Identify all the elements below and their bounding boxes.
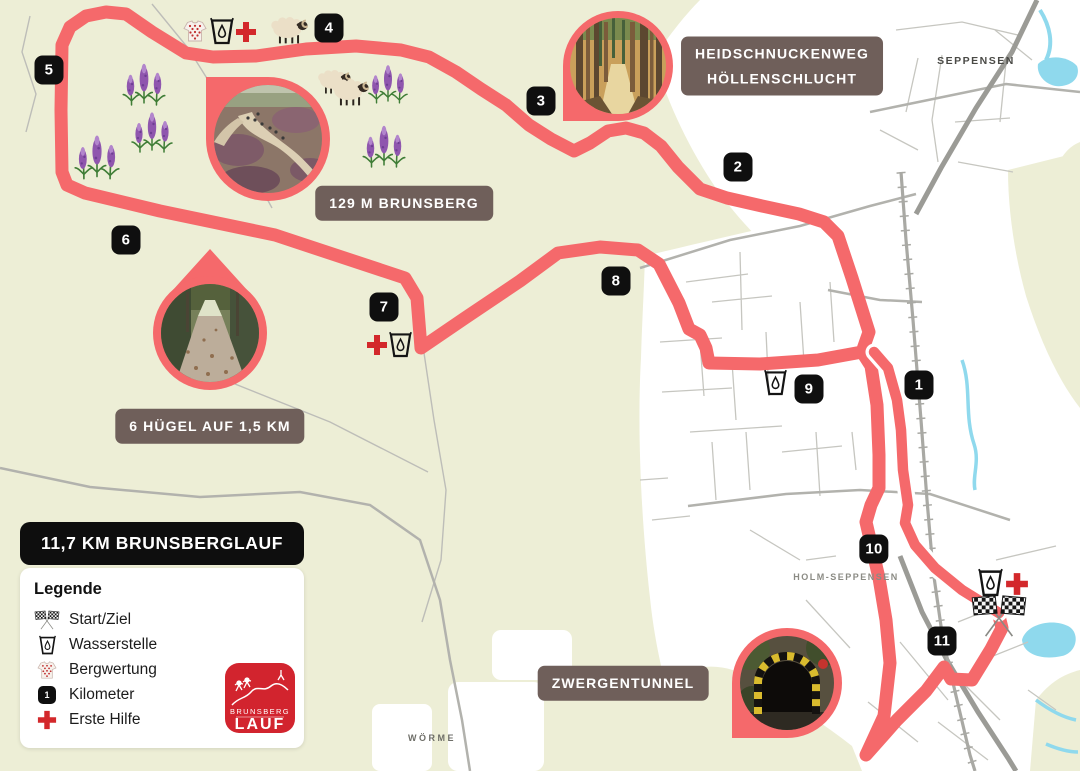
legend-body: Legende Start/Ziel Wasserstelle Bergwert… (20, 568, 304, 748)
svg-text:LAUF: LAUF (235, 716, 286, 733)
photo-brunsberg (206, 77, 330, 201)
start-finish-flags-icon (34, 610, 60, 630)
svg-text:BRUNSBERG: BRUNSBERG (230, 707, 290, 716)
brunsberglauf-logo: BRUNSBERG LAUF (225, 663, 295, 733)
legend-item-start-ziel: Start/Ziel (34, 607, 290, 632)
first-aid-icon (34, 710, 60, 730)
map-canvas: SEPPENSENHOLM-SEPPENSENWÖRME HEIDSCHNUCK… (0, 0, 1080, 771)
legend-item-wasserstelle: Wasserstelle (34, 632, 290, 657)
legend-heading: Legende (34, 580, 290, 599)
photo-hoellenschlucht (563, 11, 673, 121)
mountain-jersey-icon (34, 661, 60, 679)
water-station-icon (34, 635, 60, 655)
legend-panel: 11,7 KM BRUNSBERGLAUF Legende Start/Ziel… (20, 522, 304, 748)
kilometer-marker-icon: 1 (34, 686, 60, 704)
race-title: 11,7 KM BRUNSBERGLAUF (20, 522, 304, 565)
